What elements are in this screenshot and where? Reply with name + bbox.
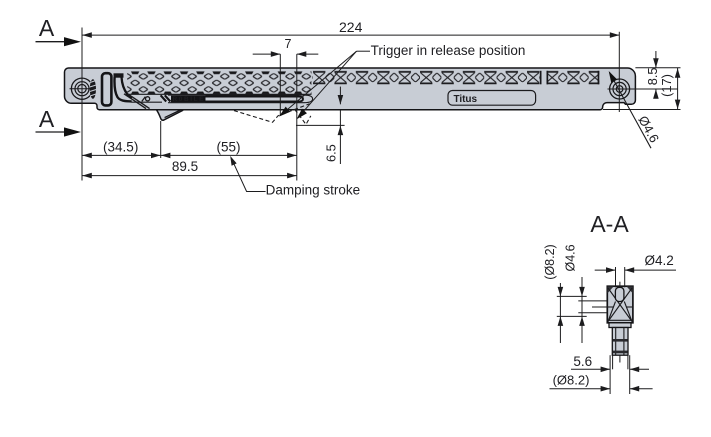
svg-text:Titus: Titus: [454, 94, 478, 105]
svg-text:Ø4.6: Ø4.6: [635, 113, 662, 145]
svg-text:Trigger in release position: Trigger in release position: [371, 43, 526, 58]
svg-text:(Ø8.2): (Ø8.2): [543, 244, 557, 279]
svg-text:A: A: [39, 106, 55, 132]
svg-text:Ø4.2: Ø4.2: [645, 253, 674, 268]
svg-text:(55): (55): [216, 139, 240, 154]
svg-text:A: A: [39, 15, 55, 41]
svg-text:8.5: 8.5: [645, 68, 660, 86]
svg-text:89.5: 89.5: [172, 159, 198, 174]
svg-text:224: 224: [339, 19, 363, 35]
svg-text:6.5: 6.5: [324, 144, 339, 162]
svg-text:Ø4.6: Ø4.6: [564, 244, 578, 271]
svg-text:5.6: 5.6: [573, 354, 592, 369]
svg-text:(Ø8.2): (Ø8.2): [553, 373, 590, 388]
svg-text:7: 7: [285, 37, 292, 51]
svg-text:A-A: A-A: [590, 211, 629, 237]
svg-text:(17): (17): [659, 74, 674, 97]
svg-text:(34.5): (34.5): [103, 139, 138, 154]
svg-text:Damping stroke: Damping stroke: [266, 182, 361, 197]
